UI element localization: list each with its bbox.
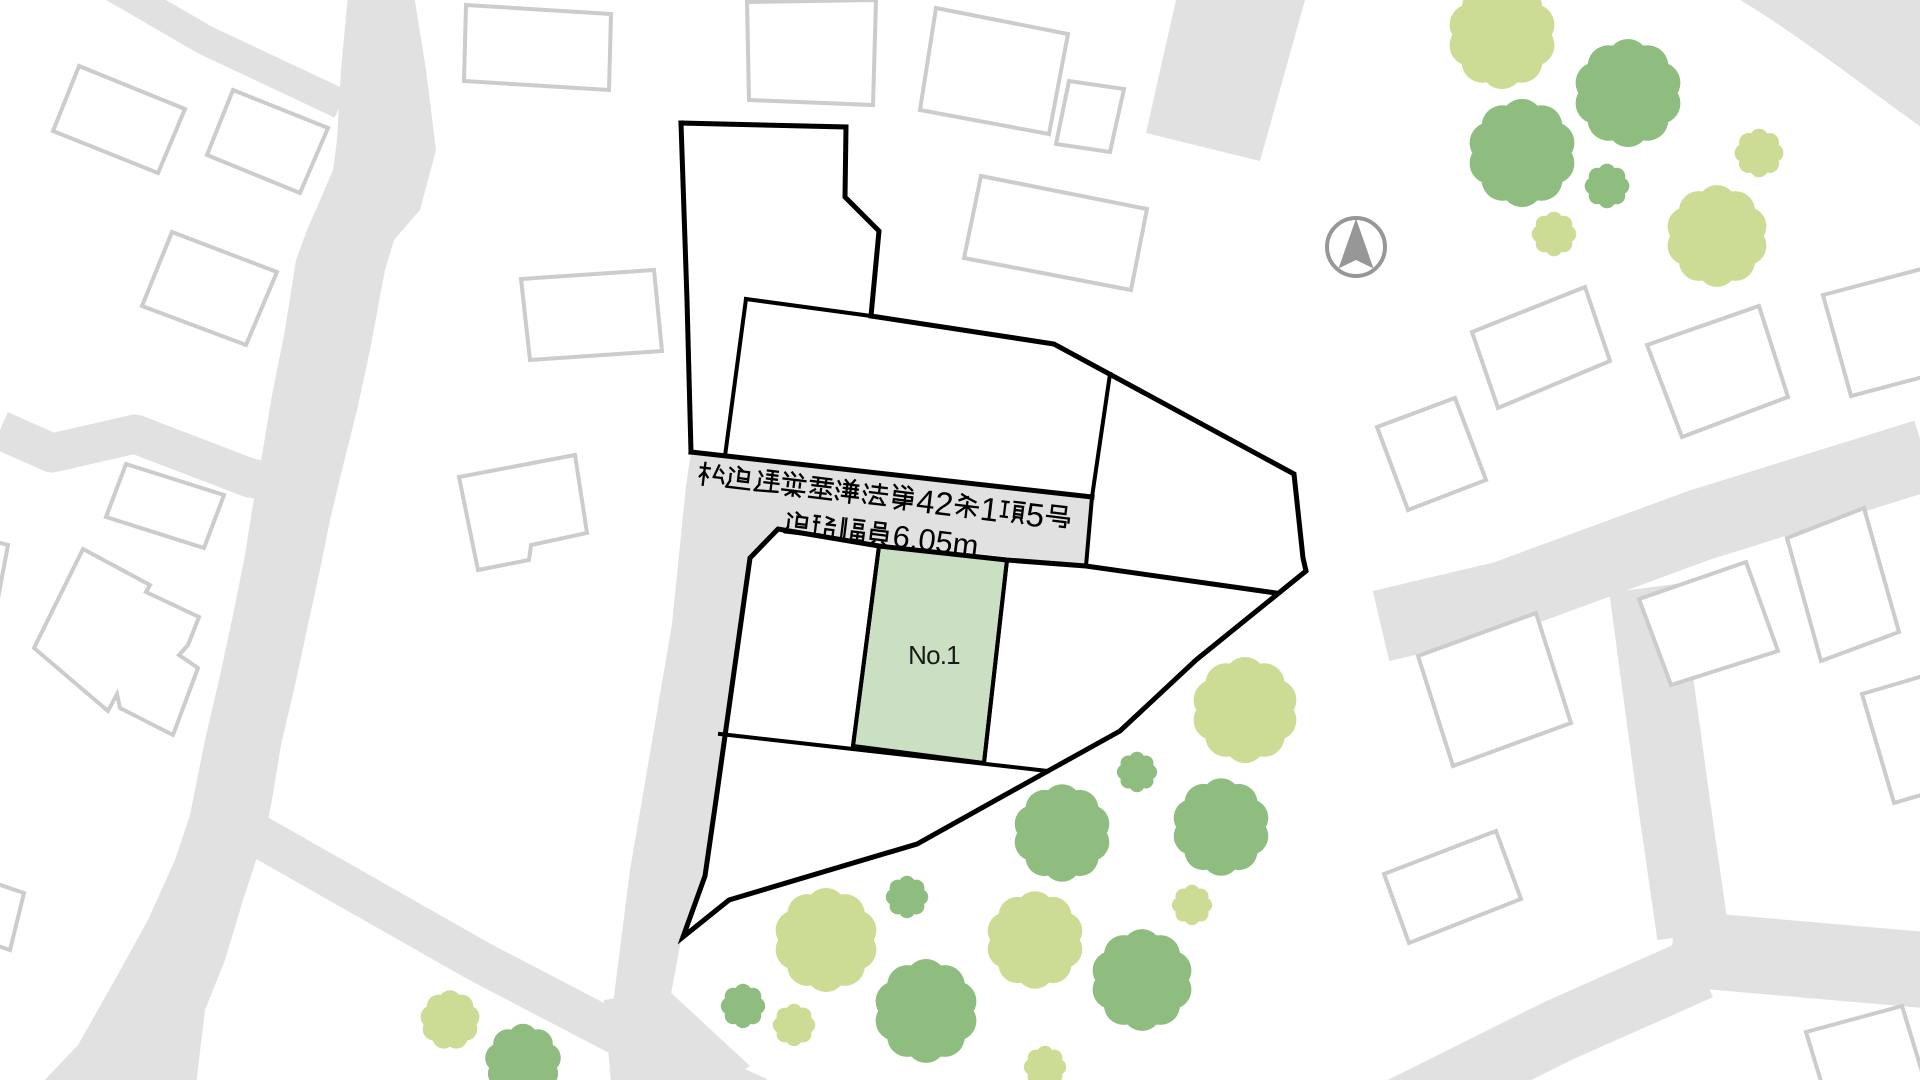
svg-text:No.1: No.1 (908, 640, 960, 670)
